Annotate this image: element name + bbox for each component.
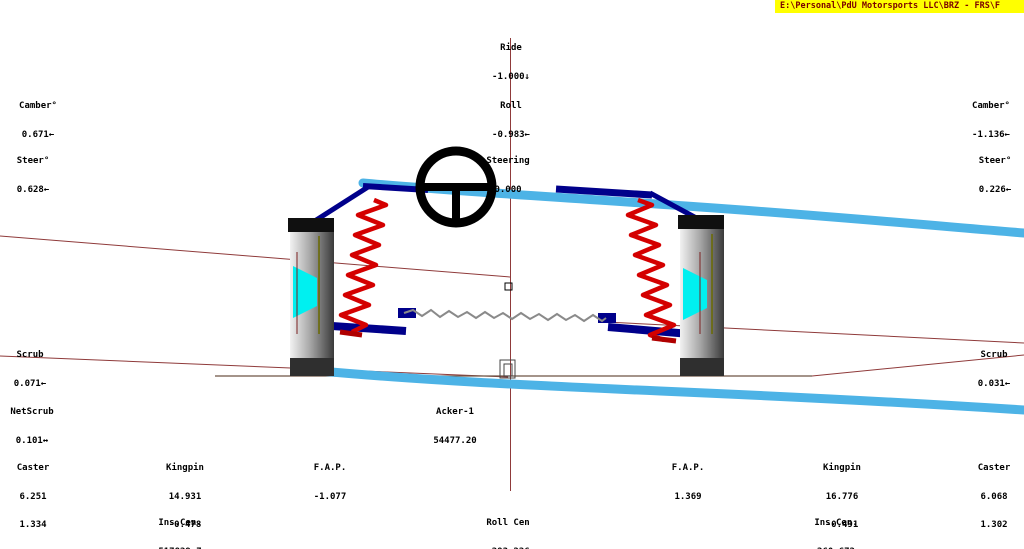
ride-label: Ride	[461, 44, 561, 54]
left-spring-seat	[340, 332, 362, 335]
caster-left-label: Caster	[0, 464, 66, 474]
steer-right-value: 0.226←	[966, 186, 1024, 196]
right-upright	[678, 215, 724, 376]
fap-right-value1: 1.369	[655, 493, 721, 503]
right-spring	[628, 200, 674, 340]
rollcen-label: Roll Cen	[473, 519, 543, 529]
right-lower-arm	[608, 327, 690, 334]
scrub-right-label: Scrub	[964, 351, 1024, 361]
right-rack-end	[598, 313, 616, 323]
steer-right-label: Steer°	[966, 157, 1024, 167]
readout-rollcen: Roll Cen -283.226 11.194	[473, 500, 543, 549]
readout-inscen-left: Ins.Cen. 517829.7 -22889.2	[145, 500, 215, 549]
left-upright	[288, 218, 334, 376]
roll-center-marker	[500, 360, 515, 378]
steer-left-value: 0.628←	[0, 186, 66, 196]
readout-fap-left: F.A.P. -1.077	[297, 445, 363, 521]
scrub-left-label: Scrub	[0, 351, 60, 361]
acker-value: 54477.20	[405, 437, 505, 447]
scrub-left-value: 0.071←	[0, 380, 60, 390]
readout-caster-right: Caster 6.068 1.302	[961, 445, 1024, 549]
camber-right-label: Camber°	[958, 102, 1024, 112]
steer-left-label: Steer°	[0, 157, 66, 167]
roll-label: Roll	[461, 102, 561, 112]
window-title-path[interactable]: E:\Personal\PdU Motorsports LLC\BRZ - FR…	[775, 0, 1024, 13]
caster-right-value1: 6.068	[961, 493, 1024, 503]
netscrub-label: NetScrub	[0, 408, 64, 418]
readout-steer-right: Steer° 0.226←	[966, 138, 1024, 214]
camber-left-label: Camber°	[2, 102, 74, 112]
readout-inscen-right: Ins.Cen. 260.672 9.318	[801, 500, 871, 549]
construction-lines	[0, 236, 1024, 377]
readout-acker: Acker-1 54477.20	[405, 389, 505, 465]
caster-right-label: Caster	[961, 464, 1024, 474]
suspension-analyzer-front-view: E:\Personal\PdU Motorsports LLC\BRZ - FR…	[0, 0, 1024, 549]
steering-rack	[404, 310, 606, 321]
acker-label: Acker-1	[405, 408, 505, 418]
fap-left-value1: -1.077	[297, 493, 363, 503]
caster-right-value2: 1.302	[961, 521, 1024, 531]
readout-fap-right: F.A.P. 1.369	[655, 445, 721, 521]
kingpin-left-label: Kingpin	[152, 464, 218, 474]
inscen-left-label: Ins.Cen.	[145, 519, 215, 529]
fap-left-label: F.A.P.	[297, 464, 363, 474]
caster-left-value2: 1.334	[0, 521, 66, 531]
readout-steering: Steering 0.000	[458, 138, 558, 214]
right-spring-seat	[652, 338, 676, 341]
kingpin-right-label: Kingpin	[809, 464, 875, 474]
caster-left-value1: 6.251	[0, 493, 66, 503]
readout-scrub-right: Scrub 0.031←	[964, 332, 1024, 408]
fap-right-label: F.A.P.	[655, 464, 721, 474]
inscen-right-label: Ins.Cen.	[801, 519, 871, 529]
steering-label: Steering	[458, 157, 558, 167]
steering-value: 0.000	[458, 186, 558, 196]
readout-steer-left: Steer° 0.628←	[0, 138, 66, 214]
readout-caster-left: Caster 6.251 1.334	[0, 445, 66, 549]
ride-value: -1.000↓	[461, 73, 561, 83]
scrub-right-value: 0.031←	[964, 380, 1024, 390]
